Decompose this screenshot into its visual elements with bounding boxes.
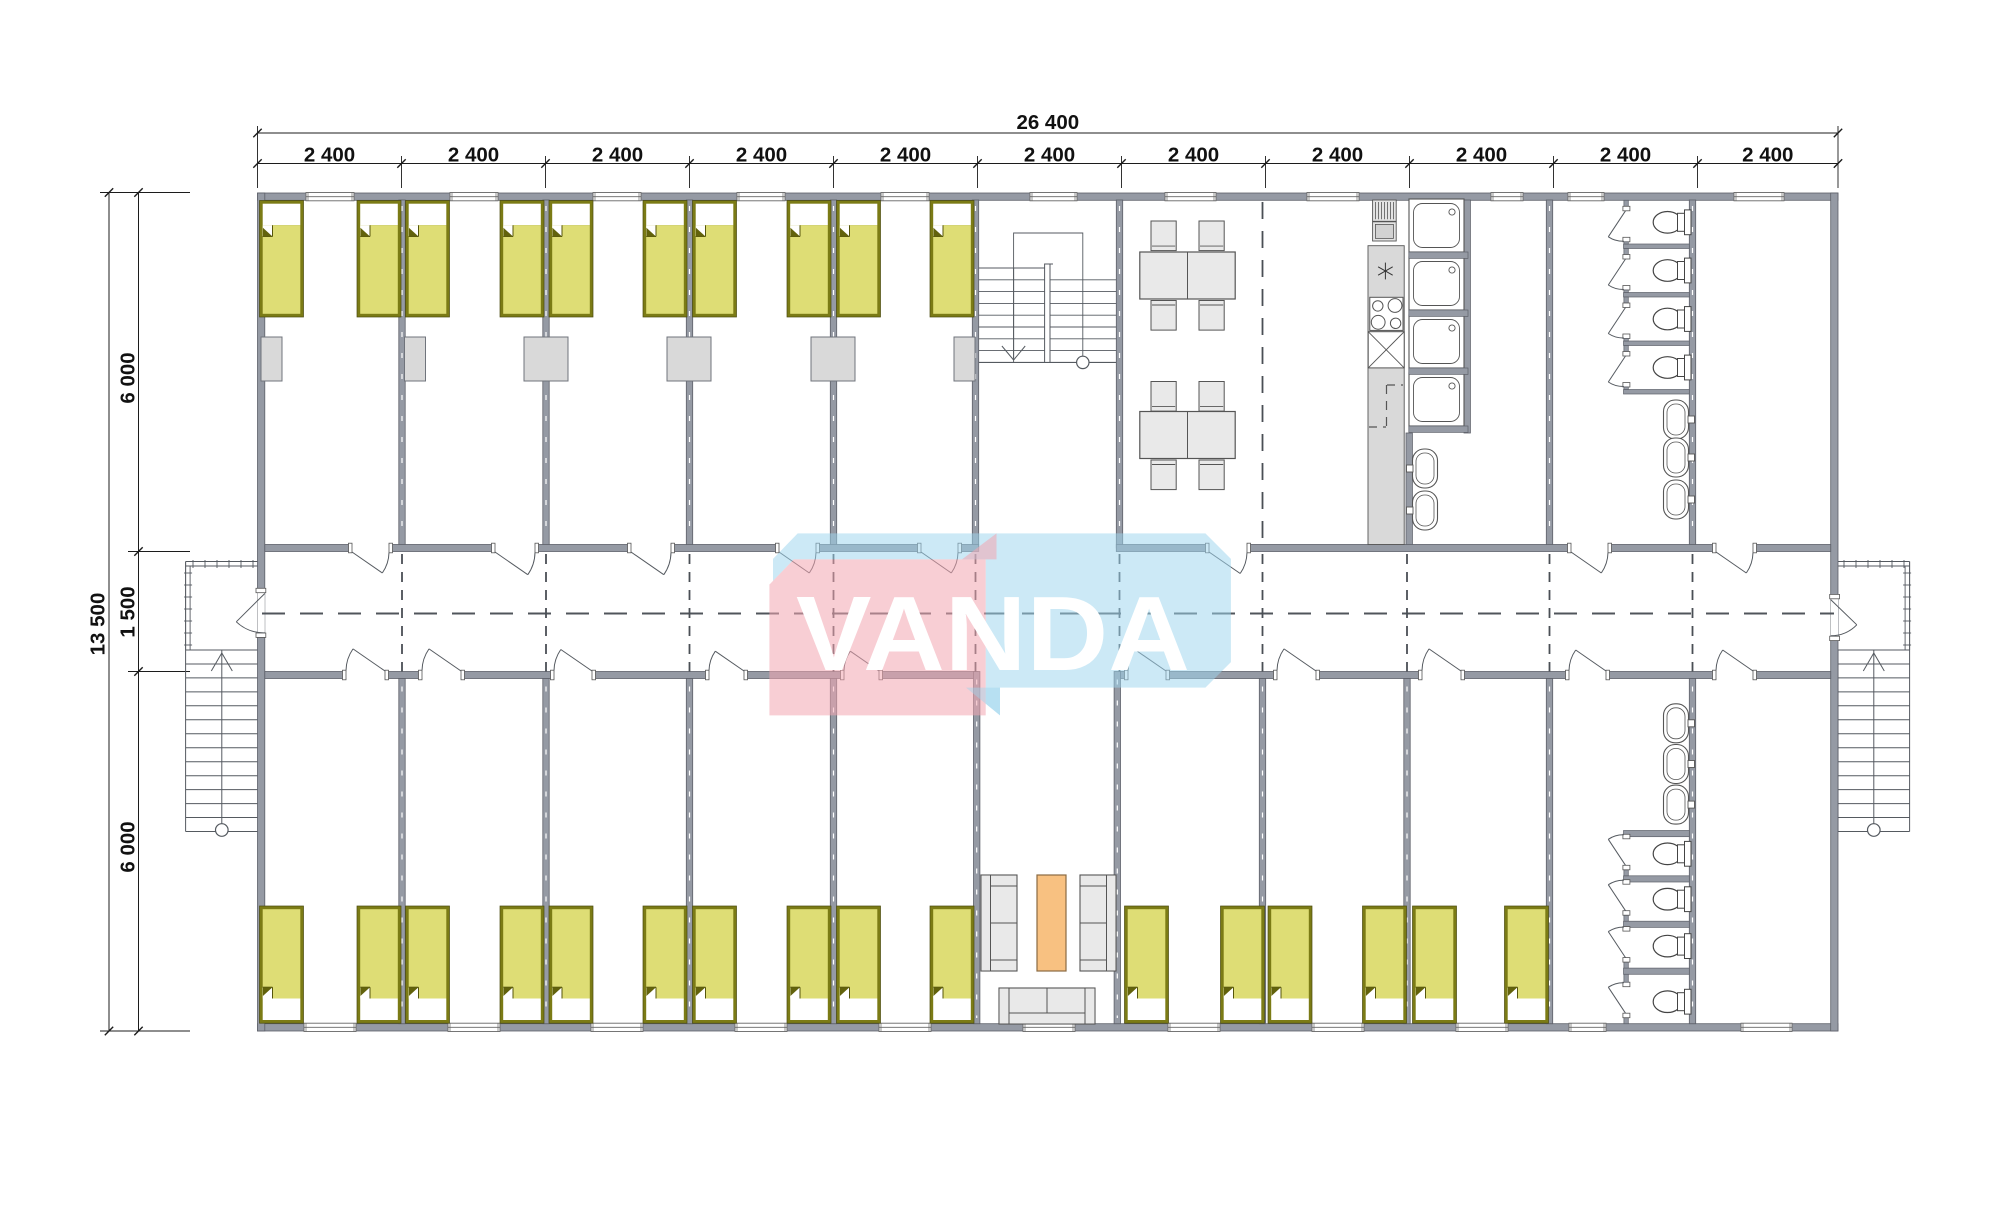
svg-text:2 400: 2 400 bbox=[448, 144, 499, 167]
svg-text:2 400: 2 400 bbox=[304, 144, 355, 167]
svg-text:1 500: 1 500 bbox=[117, 586, 140, 637]
svg-text:2 400: 2 400 bbox=[880, 144, 931, 167]
svg-text:2 400: 2 400 bbox=[1024, 144, 1075, 167]
svg-text:2 400: 2 400 bbox=[1742, 144, 1793, 167]
svg-text:26 400: 26 400 bbox=[1016, 111, 1079, 134]
svg-text:13 500: 13 500 bbox=[87, 593, 110, 656]
svg-text:2 400: 2 400 bbox=[736, 144, 787, 167]
svg-text:2 400: 2 400 bbox=[1456, 144, 1507, 167]
svg-text:VANDA: VANDA bbox=[796, 575, 1190, 693]
svg-text:2 400: 2 400 bbox=[1312, 144, 1363, 167]
svg-text:6 000: 6 000 bbox=[117, 352, 140, 403]
svg-text:6 000: 6 000 bbox=[117, 821, 140, 872]
svg-text:2 400: 2 400 bbox=[1600, 144, 1651, 167]
svg-text:2 400: 2 400 bbox=[592, 144, 643, 167]
svg-text:2 400: 2 400 bbox=[1168, 144, 1219, 167]
